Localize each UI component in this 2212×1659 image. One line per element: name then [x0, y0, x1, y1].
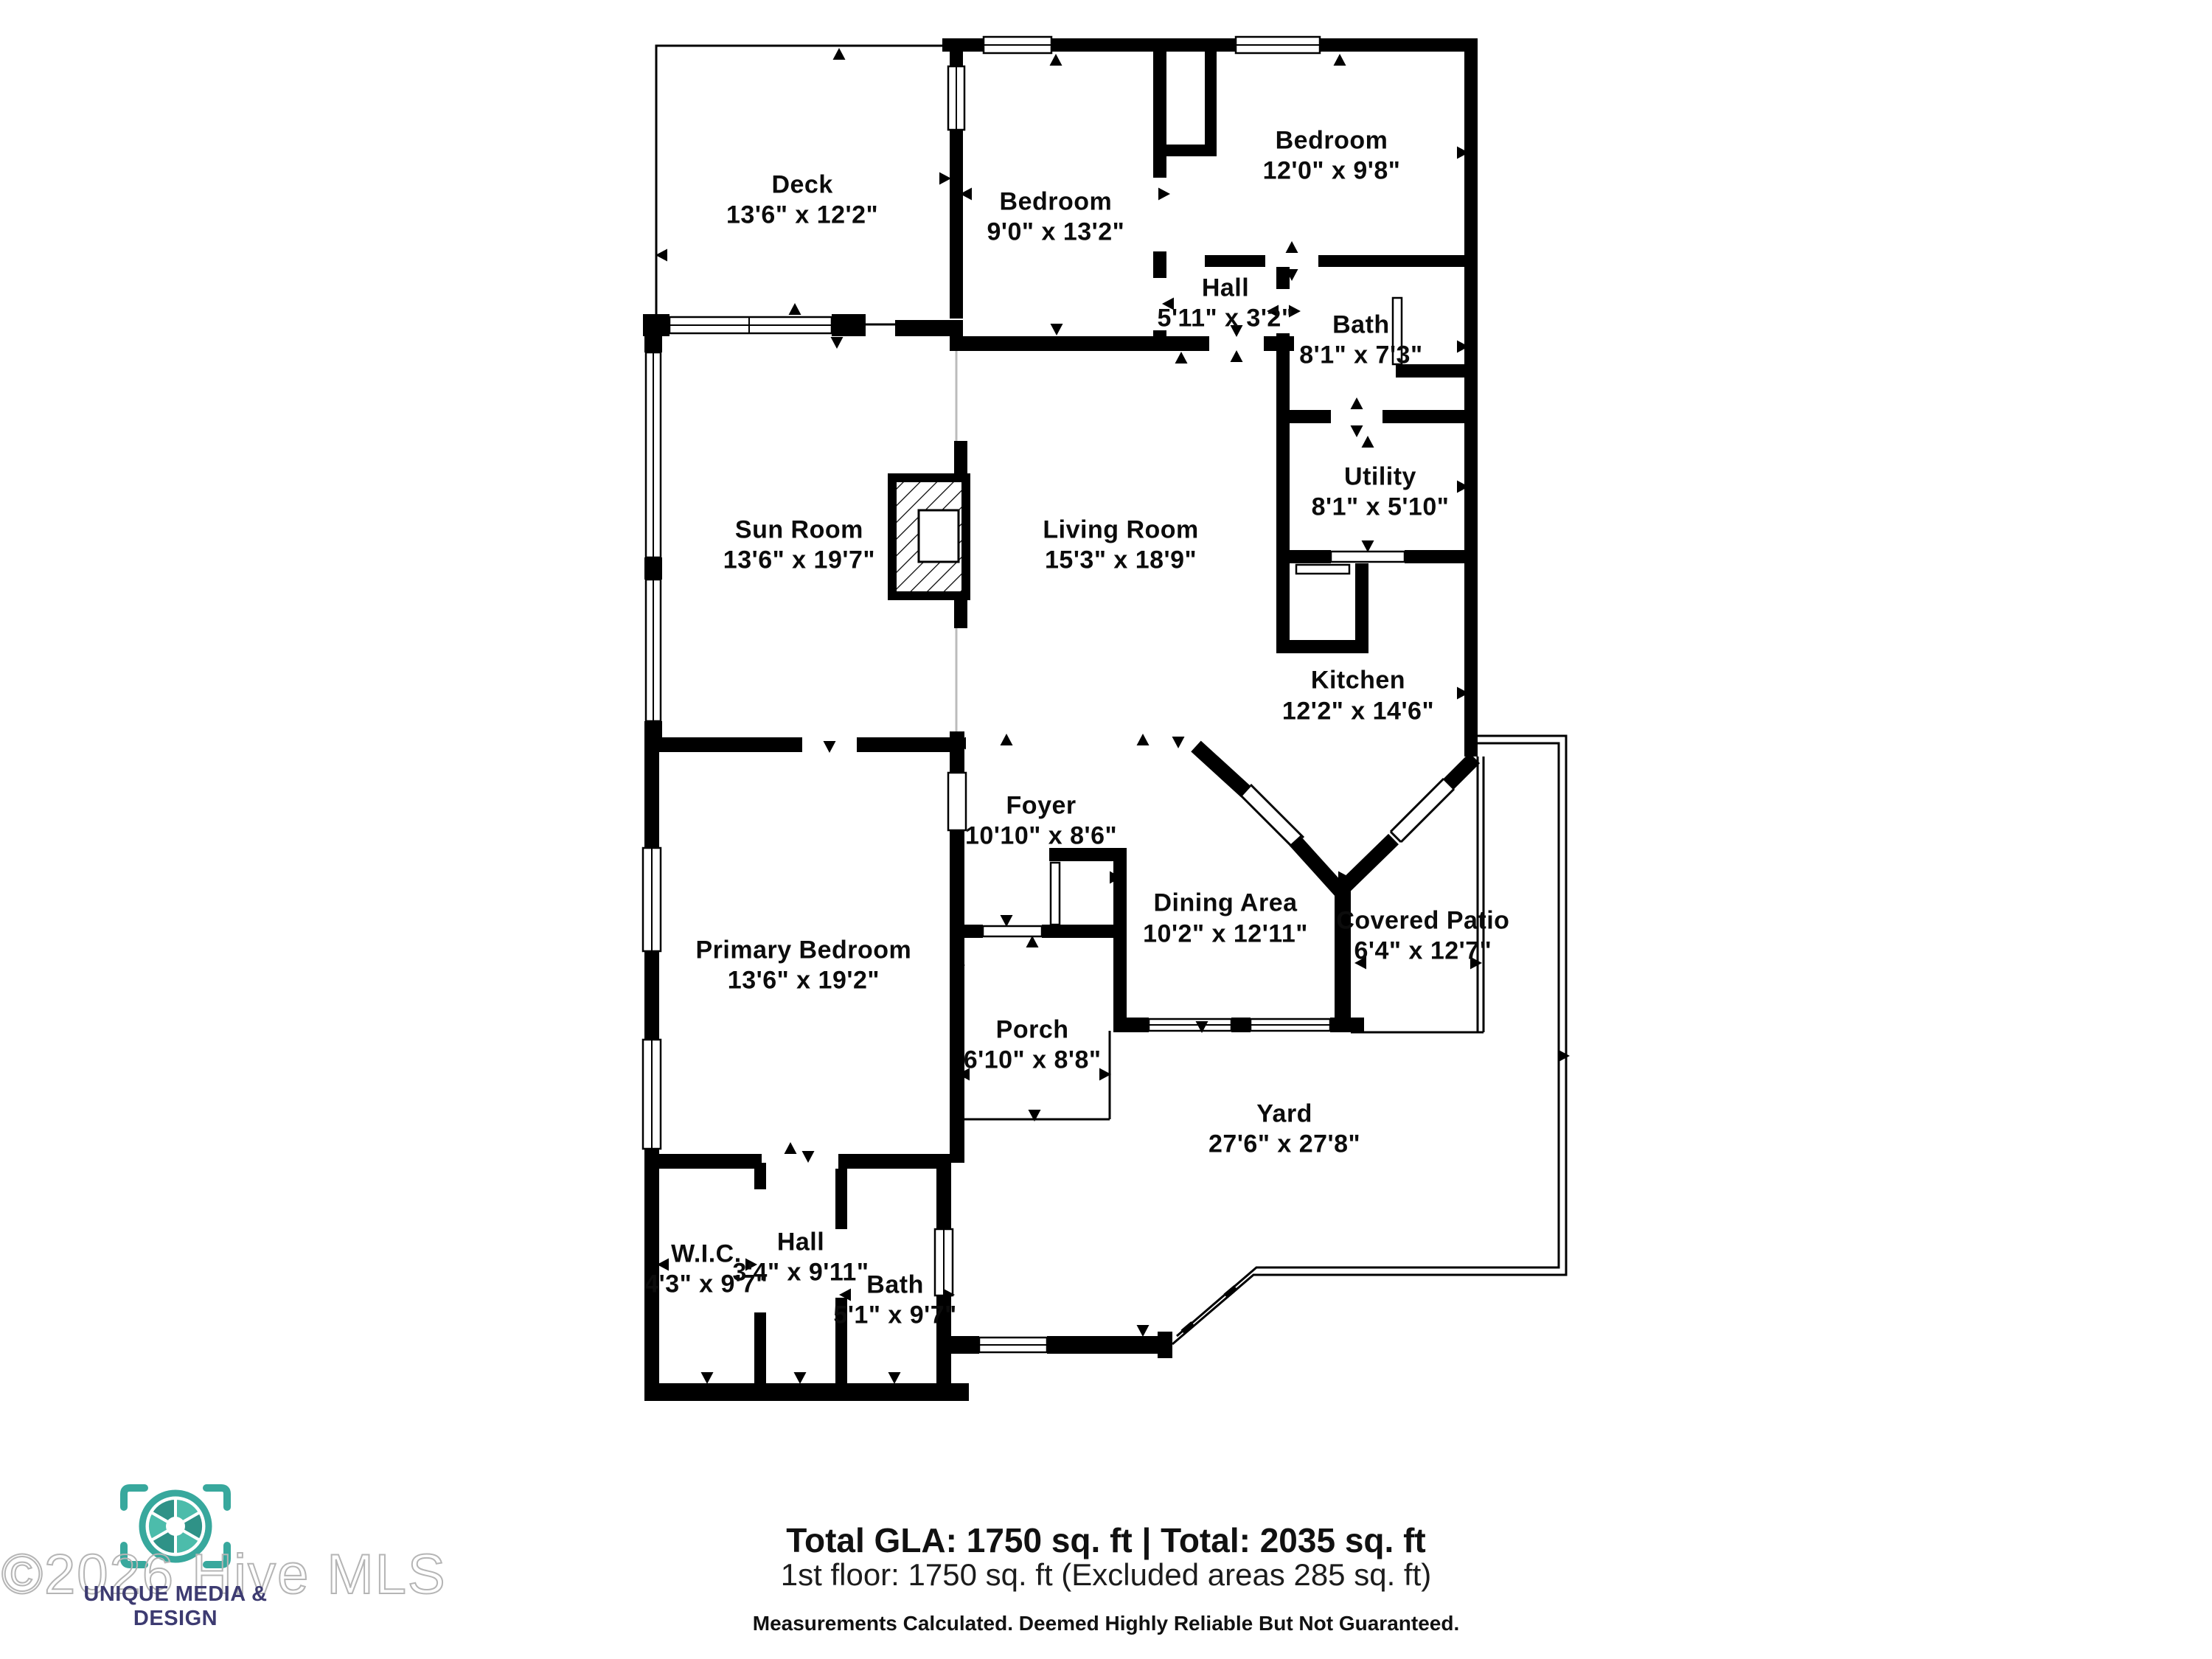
room-name: Bath	[833, 1270, 956, 1301]
room-label-deck: Deck 13'6" x 12'2"	[726, 170, 878, 232]
angled-window	[1240, 779, 1454, 848]
room-name: Porch	[964, 1015, 1102, 1045]
room-name: Deck	[726, 170, 878, 201]
room-name: Primary Bedroom	[695, 935, 911, 965]
room-dims: 10'10" x 8'6"	[965, 821, 1117, 852]
room-dims: 13'6" x 19'2"	[695, 966, 911, 996]
room-label-bath-upper: Bath 8'1" x 7'3"	[1299, 310, 1422, 371]
room-name: Utility	[1312, 462, 1450, 493]
room-label-covered-patio: Covered Patio 6'4" x 12'7"	[1336, 905, 1509, 967]
room-label-porch: Porch 6'10" x 8'8"	[964, 1015, 1102, 1076]
room-label-foyer: Foyer 10'10" x 8'6"	[965, 791, 1117, 852]
first-floor-text: 1st floor: 1750 sq. ft (Excluded areas 2…	[781, 1557, 1431, 1593]
room-name: Bedroom	[1263, 125, 1401, 156]
room-label-yard: Yard 27'6" x 27'8"	[1208, 1099, 1360, 1161]
room-label-bath-lower: Bath 5'1" x 9'7"	[833, 1270, 956, 1332]
room-label-kitchen: Kitchen 12'2" x 14'6"	[1282, 666, 1434, 727]
room-name: Kitchen	[1282, 666, 1434, 696]
room-label-sun-room: Sun Room 13'6" x 19'7"	[723, 515, 875, 577]
room-dims: 12'2" x 14'6"	[1282, 696, 1434, 726]
disclaimer-text: Measurements Calculated. Deemed Highly R…	[753, 1612, 1459, 1635]
kitchen-angled-walls	[1196, 746, 1475, 894]
company-name: UNIQUE MEDIA & DESIGN	[43, 1582, 308, 1631]
room-dims: 10'2" x 12'11"	[1143, 919, 1308, 949]
room-name: Living Room	[1043, 515, 1198, 546]
room-label-bedroom-2: Bedroom 12'0" x 9'8"	[1263, 125, 1401, 187]
room-label-hall-upper: Hall 5'11" x 3'2"	[1158, 274, 1294, 335]
room-dims: 27'6" x 27'8"	[1208, 1130, 1360, 1160]
room-name: Yard	[1208, 1099, 1360, 1130]
room-dims: 15'3" x 18'9"	[1043, 546, 1198, 576]
room-label-bedroom-1: Bedroom 9'0" x 13'2"	[987, 187, 1125, 248]
room-dims: 13'6" x 12'2"	[726, 201, 878, 231]
room-name: Hall	[733, 1227, 869, 1257]
room-label-primary-bedroom: Primary Bedroom 13'6" x 19'2"	[695, 935, 911, 996]
room-name: Bath	[1299, 310, 1422, 340]
room-dims: 8'1" x 5'10"	[1312, 493, 1450, 523]
room-dims: 12'0" x 9'8"	[1263, 156, 1401, 187]
room-name: Dining Area	[1143, 888, 1308, 919]
room-dims: 6'4" x 12'7"	[1336, 936, 1509, 967]
room-dims: 5'11" x 3'2"	[1158, 304, 1294, 334]
room-label-utility: Utility 8'1" x 5'10"	[1312, 462, 1450, 524]
room-name: Bedroom	[987, 187, 1125, 218]
yard-outline-ticks	[1181, 1285, 1238, 1335]
room-name: Sun Room	[723, 515, 875, 546]
total-gla-text: Total GLA: 1750 sq. ft | Total: 2035 sq.…	[786, 1520, 1425, 1560]
room-dims: 9'0" x 13'2"	[987, 218, 1125, 248]
floor-plan-page: Deck 13'6" x 12'2" Bedroom 9'0" x 13'2" …	[0, 0, 2212, 1659]
room-label-living-room: Living Room 15'3" x 18'9"	[1043, 515, 1198, 577]
fireplace	[892, 478, 966, 596]
room-name: Covered Patio	[1336, 905, 1509, 936]
room-dims: 6'10" x 8'8"	[964, 1046, 1102, 1076]
room-dims: 5'1" x 9'7"	[833, 1301, 956, 1331]
room-dims: 8'1" x 7'3"	[1299, 341, 1422, 371]
room-dims: 13'6" x 19'7"	[723, 546, 875, 576]
room-name: Foyer	[965, 791, 1117, 821]
room-label-dining-area: Dining Area 10'2" x 12'11"	[1143, 888, 1308, 950]
room-name: Hall	[1158, 274, 1294, 304]
